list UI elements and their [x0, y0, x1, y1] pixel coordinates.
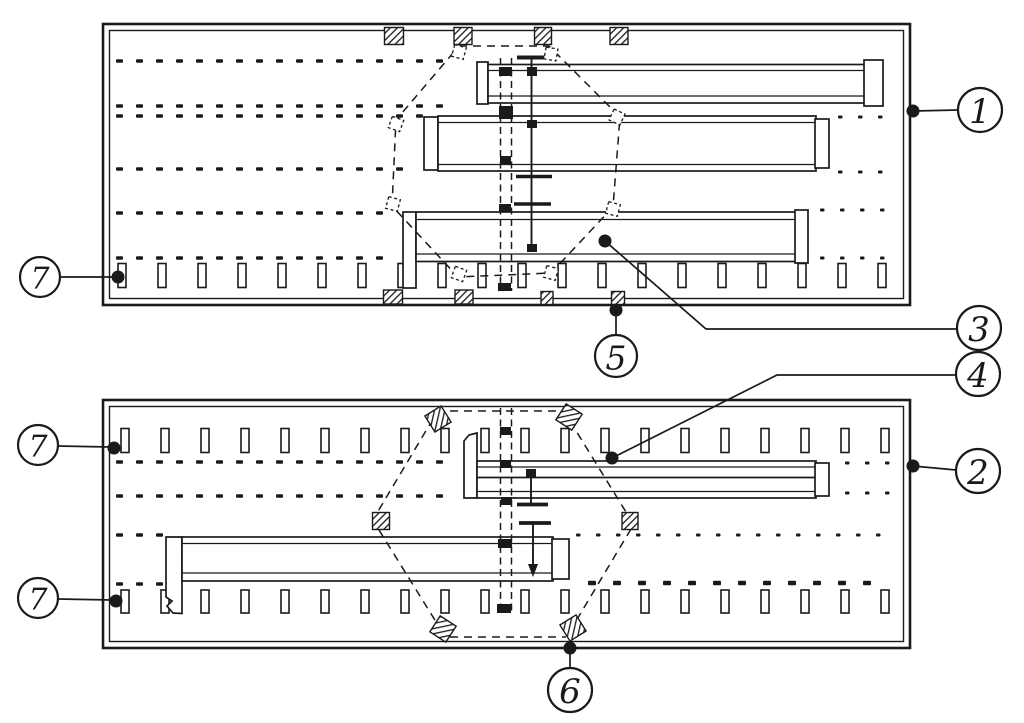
callout-7-upper-label: 7 — [30, 262, 50, 297]
dash-mark — [156, 211, 163, 215]
dash-mark — [236, 167, 243, 171]
slot — [241, 429, 249, 453]
dash-mark — [880, 257, 885, 260]
slot — [761, 590, 769, 613]
callout-6-dot — [564, 642, 577, 655]
dash-mark — [316, 256, 323, 260]
slot — [318, 264, 326, 288]
dash-mark — [176, 211, 183, 215]
dash-mark — [636, 534, 641, 537]
dash-mark — [756, 534, 761, 537]
slot — [801, 429, 809, 453]
dash-mark — [838, 581, 846, 586]
callout-7-middle-label: 7 — [28, 430, 48, 465]
dash-mark — [196, 167, 203, 171]
dash-mark — [256, 59, 263, 63]
slot — [281, 590, 289, 613]
dash-mark — [236, 104, 243, 108]
black-mark — [527, 67, 537, 76]
dash-mark — [296, 59, 303, 63]
black-mark — [527, 120, 537, 128]
dash-mark — [663, 581, 671, 586]
dash-mark — [156, 460, 163, 464]
slot — [401, 429, 409, 453]
dash-mark — [276, 167, 283, 171]
dash-mark — [216, 256, 223, 260]
dash-mark — [336, 256, 343, 260]
callout-1-label: 1 — [969, 92, 991, 132]
callout-5-dot — [610, 304, 623, 317]
dash-mark — [416, 114, 423, 118]
dash-mark — [356, 167, 363, 171]
dash-mark — [296, 256, 303, 260]
slot — [561, 429, 569, 453]
slot — [798, 264, 806, 288]
dash-mark — [196, 494, 203, 498]
slot — [761, 429, 769, 453]
black-mark — [500, 156, 511, 164]
dash-mark — [860, 209, 865, 212]
dash-mark — [156, 104, 163, 108]
slot — [441, 429, 449, 453]
dash-mark — [838, 171, 843, 174]
callout-1: 1 — [907, 88, 1003, 132]
dash-mark — [858, 116, 863, 119]
dash-mark — [236, 494, 243, 498]
dash-mark — [736, 534, 741, 537]
black-mark — [497, 604, 511, 613]
dash-mark — [256, 211, 263, 215]
dash-mark — [878, 116, 883, 119]
slot — [881, 429, 889, 453]
lower-dashed-outline — [377, 411, 631, 637]
dash-mark — [216, 104, 223, 108]
dash-mark — [296, 167, 303, 171]
dash-mark — [885, 462, 890, 465]
dash-mark — [416, 59, 423, 63]
slot — [441, 590, 449, 613]
dash-mark — [116, 59, 123, 63]
hatch-square — [430, 616, 456, 642]
dash-mark — [416, 104, 423, 108]
dash-mark — [436, 494, 443, 498]
dash-mark — [616, 534, 621, 537]
black-mark — [527, 244, 537, 252]
figure-canvas: 1 2 3 4 5 6 — [0, 0, 1024, 723]
dash-mark — [216, 167, 223, 171]
dash-mark — [296, 104, 303, 108]
slot — [678, 264, 686, 288]
callout-7-upper-dot — [112, 271, 125, 284]
dash-mark — [863, 581, 871, 586]
dash-mark — [256, 167, 263, 171]
dash-mark — [588, 581, 596, 586]
dash-mark — [316, 167, 323, 171]
dash-mark — [276, 494, 283, 498]
dash-mark — [416, 494, 423, 498]
hatch-square — [384, 290, 403, 304]
dash-mark — [116, 494, 123, 498]
slot — [401, 590, 409, 613]
dash-mark — [336, 460, 343, 464]
black-mark — [499, 67, 512, 76]
slot — [881, 590, 889, 613]
dash-mark — [196, 211, 203, 215]
dash-mark — [880, 209, 885, 212]
hatch-square — [541, 292, 553, 305]
slot — [518, 264, 526, 288]
hatch-square — [622, 513, 638, 530]
dash-mark — [176, 167, 183, 171]
dash-mark — [136, 494, 143, 498]
slot — [158, 264, 166, 288]
dash-mark — [316, 494, 323, 498]
hatch-square — [535, 28, 552, 45]
dash-mark — [276, 460, 283, 464]
dash-mark — [176, 114, 183, 118]
dash-mark — [688, 581, 696, 586]
dash-mark — [256, 114, 263, 118]
dash-mark — [336, 167, 343, 171]
dash-mark — [256, 460, 263, 464]
dash-mark — [136, 533, 143, 537]
hatch-square — [373, 513, 390, 530]
dash-mark — [845, 492, 850, 495]
slot — [241, 590, 249, 613]
slot — [521, 429, 529, 453]
dash-mark — [356, 59, 363, 63]
slot — [278, 264, 286, 288]
dash-mark — [336, 114, 343, 118]
rail-left-tall-cap — [403, 212, 416, 288]
dash-mark — [763, 581, 771, 586]
callout-7-middle-leader — [58, 446, 110, 447]
dash-mark — [136, 211, 143, 215]
dash-mark — [176, 59, 183, 63]
slot — [361, 590, 369, 613]
dash-mark — [256, 256, 263, 260]
slot — [841, 429, 849, 453]
dash-mark — [336, 494, 343, 498]
black-mark — [498, 539, 512, 548]
dash-mark — [216, 114, 223, 118]
upper-panel-rail-1 — [477, 60, 883, 106]
black-mark — [526, 469, 536, 478]
dash-mark — [796, 534, 801, 537]
dash-mark — [236, 114, 243, 118]
dash-mark — [156, 256, 163, 260]
dash-mark — [316, 104, 323, 108]
dash-mark — [176, 494, 183, 498]
dash-mark — [356, 211, 363, 215]
dash-mark — [576, 534, 581, 537]
dash-mark — [336, 59, 343, 63]
dash-mark — [716, 534, 721, 537]
dash-mark — [196, 104, 203, 108]
dash-mark — [236, 460, 243, 464]
dash-mark — [276, 59, 283, 63]
dash-mark — [396, 114, 403, 118]
dashed-vertex-square — [388, 116, 403, 131]
dash-mark — [236, 59, 243, 63]
dash-mark — [776, 534, 781, 537]
slot — [281, 429, 289, 453]
dash-mark — [276, 114, 283, 118]
dashed-vertex-square — [544, 47, 558, 61]
dash-mark — [296, 211, 303, 215]
dash-mark — [116, 256, 123, 260]
slot — [321, 429, 329, 453]
dash-mark — [216, 460, 223, 464]
dash-mark — [136, 582, 143, 586]
slot — [521, 590, 529, 613]
dash-mark — [116, 460, 123, 464]
slot — [361, 429, 369, 453]
slot — [878, 264, 886, 288]
dash-mark — [860, 257, 865, 260]
dash-mark — [356, 494, 363, 498]
callout-6: 6 — [548, 642, 592, 713]
slot — [681, 590, 689, 613]
hatch-square — [385, 28, 404, 45]
slot — [601, 590, 609, 613]
dash-mark — [376, 460, 383, 464]
slot — [641, 590, 649, 613]
dash-mark — [396, 167, 403, 171]
rail-left-hook-bracket — [464, 433, 477, 498]
dash-mark — [256, 104, 263, 108]
dash-mark — [136, 167, 143, 171]
slot — [598, 264, 606, 288]
dash-mark — [136, 59, 143, 63]
dash-mark — [376, 167, 383, 171]
dash-mark — [376, 256, 383, 260]
dash-mark — [416, 460, 423, 464]
dash-mark — [216, 494, 223, 498]
dash-mark — [836, 534, 841, 537]
dash-mark — [156, 59, 163, 63]
slot — [321, 590, 329, 613]
dash-mark — [316, 114, 323, 118]
dash-mark — [865, 462, 870, 465]
dash-mark — [176, 256, 183, 260]
dash-mark — [356, 256, 363, 260]
upper-panel-rail-2 — [424, 116, 829, 171]
dash-mark — [376, 494, 383, 498]
slot — [481, 590, 489, 613]
dash-mark — [296, 114, 303, 118]
callout-2: 2 — [907, 449, 1001, 493]
slot — [841, 590, 849, 613]
dash-mark — [436, 59, 443, 63]
dashed-vertex-square — [452, 45, 467, 60]
slot — [161, 429, 169, 453]
dash-mark — [276, 211, 283, 215]
rail-right-cap — [795, 210, 808, 263]
black-mark — [499, 106, 513, 119]
dash-mark — [696, 534, 701, 537]
hatch-square — [612, 292, 625, 305]
hatch-square — [556, 404, 582, 430]
callout-1-leader — [913, 110, 958, 111]
dash-mark — [236, 211, 243, 215]
slot — [561, 590, 569, 613]
dash-mark — [838, 116, 843, 119]
dash-mark — [196, 256, 203, 260]
dash-mark — [276, 104, 283, 108]
callout-7-middle: 7 — [18, 425, 121, 465]
dash-mark — [156, 167, 163, 171]
dash-mark — [316, 460, 323, 464]
dash-mark — [116, 582, 123, 586]
dash-mark — [376, 211, 383, 215]
rail-right-cap — [552, 539, 569, 579]
slot — [201, 429, 209, 453]
dashed-vertex-square — [386, 197, 401, 212]
callout-5-label: 5 — [606, 339, 627, 378]
dash-mark — [878, 171, 883, 174]
dash-mark — [820, 257, 825, 260]
dash-mark — [820, 209, 825, 212]
dash-mark — [436, 460, 443, 464]
dash-mark — [196, 460, 203, 464]
dash-mark — [316, 59, 323, 63]
dash-mark — [196, 114, 203, 118]
black-mark — [500, 427, 511, 435]
dash-mark — [356, 104, 363, 108]
dash-mark — [156, 494, 163, 498]
dash-mark — [596, 534, 601, 537]
dash-mark — [876, 534, 881, 537]
dash-mark — [336, 211, 343, 215]
rail-right-cap — [815, 119, 829, 168]
dashed-vertex-square — [544, 266, 559, 281]
callout-7-lower-dot — [110, 595, 123, 608]
dash-mark — [196, 59, 203, 63]
callout-3-label: 3 — [968, 310, 990, 350]
callout-4-leader — [612, 375, 956, 458]
dash-mark — [613, 581, 621, 586]
callout-7-middle-dot — [108, 442, 121, 455]
slot — [198, 264, 206, 288]
dash-mark — [840, 209, 845, 212]
dash-mark — [396, 494, 403, 498]
slot — [438, 264, 446, 288]
dash-mark — [356, 460, 363, 464]
callout-2-label: 2 — [966, 453, 989, 493]
dash-mark — [136, 256, 143, 260]
slot — [121, 429, 129, 453]
callout-7-lower-label: 7 — [28, 583, 48, 618]
dash-mark — [296, 494, 303, 498]
dash-mark — [256, 494, 263, 498]
slot — [201, 590, 209, 613]
dash-mark — [176, 460, 183, 464]
dash-mark — [116, 114, 123, 118]
dash-mark — [376, 59, 383, 63]
dash-mark — [176, 104, 183, 108]
dash-mark — [216, 59, 223, 63]
black-mark — [500, 460, 511, 468]
dash-mark — [156, 582, 163, 586]
slot — [558, 264, 566, 288]
slot — [721, 590, 729, 613]
slot — [601, 429, 609, 453]
dash-mark — [136, 104, 143, 108]
dash-mark — [336, 104, 343, 108]
pallet-assembly-figure: 1 2 3 4 5 6 — [0, 0, 1024, 723]
dash-mark — [713, 581, 721, 586]
dash-mark — [816, 534, 821, 537]
rail-body — [438, 116, 816, 171]
dash-mark — [676, 534, 681, 537]
dash-mark — [738, 581, 746, 586]
slot — [481, 429, 489, 453]
slot — [681, 429, 689, 453]
dash-mark — [638, 581, 646, 586]
dash-mark — [216, 211, 223, 215]
callout-7-lower: 7 — [18, 578, 123, 618]
dash-mark — [236, 256, 243, 260]
hatch-square — [610, 28, 628, 45]
dash-mark — [376, 104, 383, 108]
slot — [838, 264, 846, 288]
dash-mark — [156, 533, 163, 537]
dash-mark — [136, 460, 143, 464]
slot — [358, 264, 366, 288]
slot — [758, 264, 766, 288]
black-mark — [498, 283, 511, 291]
callout-4-label: 4 — [966, 356, 989, 396]
slot — [238, 264, 246, 288]
dashed-vertex-square — [451, 266, 466, 281]
dash-mark — [396, 59, 403, 63]
dash-mark — [116, 533, 123, 537]
slot — [718, 264, 726, 288]
dash-mark — [356, 114, 363, 118]
dash-mark — [376, 114, 383, 118]
black-mark — [501, 497, 512, 505]
dash-mark — [856, 534, 861, 537]
dash-mark — [788, 581, 796, 586]
callout-4-dot — [606, 452, 619, 465]
dash-mark — [865, 492, 870, 495]
callout-2-dot — [907, 460, 920, 473]
callout-3-dot — [599, 235, 612, 248]
callout-7-lower-leader — [58, 599, 112, 600]
dash-mark — [116, 211, 123, 215]
rail-left-cap — [424, 117, 438, 170]
hatch-square — [455, 290, 473, 304]
black-mark — [499, 204, 511, 212]
dash-mark — [316, 211, 323, 215]
slot — [721, 429, 729, 453]
dash-mark — [136, 114, 143, 118]
dash-mark — [436, 104, 443, 108]
dash-mark — [156, 114, 163, 118]
dash-mark — [296, 460, 303, 464]
dash-mark — [396, 460, 403, 464]
dash-mark — [396, 104, 403, 108]
hatch-square — [454, 28, 472, 45]
dash-mark — [858, 171, 863, 174]
dash-mark — [116, 167, 123, 171]
dash-mark — [845, 462, 850, 465]
dash-mark — [840, 257, 845, 260]
dash-mark — [813, 581, 821, 586]
dash-mark — [116, 104, 123, 108]
dash-mark — [656, 534, 661, 537]
